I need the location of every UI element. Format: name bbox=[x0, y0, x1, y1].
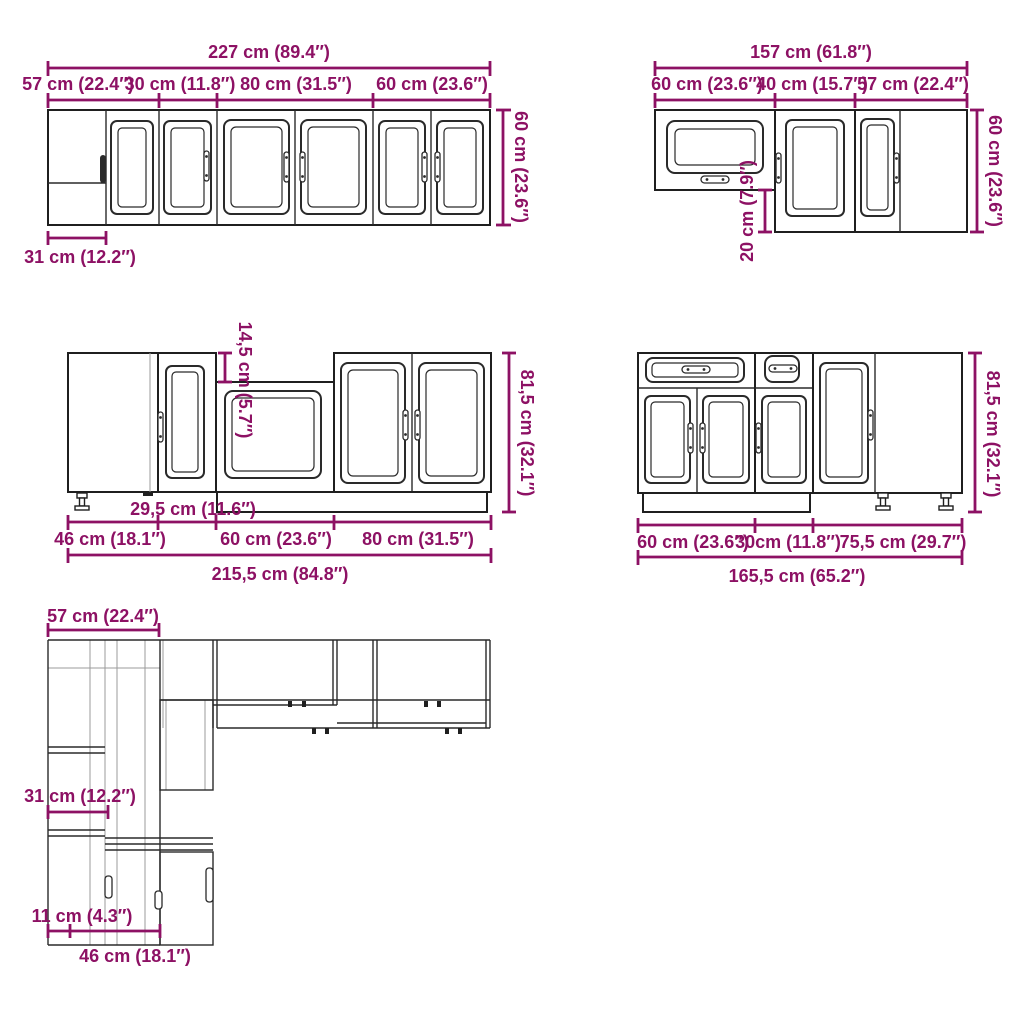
total-width-dimension: 165,5 cm (65.2″) bbox=[638, 550, 962, 586]
wall-depth-dimension: 31 cm (12.2″) bbox=[24, 786, 136, 819]
wall-cabinet bbox=[775, 110, 855, 232]
door-handle bbox=[435, 152, 440, 182]
dimension-label: 20 cm (7.9″) bbox=[737, 160, 757, 262]
door-handle bbox=[284, 152, 289, 182]
corner-wall-cabinet bbox=[855, 110, 967, 232]
door-handle bbox=[105, 876, 112, 898]
dimension-label: 80 cm (31.5″) bbox=[240, 74, 352, 94]
sink-base-cabinet bbox=[216, 382, 334, 492]
dimension-diagram: 227 cm (89.4″) 57 cm (22.4″) 30 cm (11.8… bbox=[0, 0, 1024, 1024]
door-handle bbox=[300, 152, 305, 182]
dimension-label: 31 cm (12.2″) bbox=[24, 247, 136, 267]
dimension-label: 60 cm (23.6″) bbox=[985, 115, 1005, 227]
plinth-panel bbox=[643, 493, 810, 512]
door-handle bbox=[688, 423, 693, 453]
corner-base-cabinet bbox=[68, 353, 158, 510]
dimension-label: 11 cm (4.3″) bbox=[32, 906, 133, 926]
dimension-label: 57 cm (22.4″) bbox=[22, 74, 134, 94]
dimension-label: 157 cm (61.8″) bbox=[750, 42, 872, 62]
wall-run-b-front-view: 157 cm (61.8″) 60 cm (23.6″) 40 cm (15.7… bbox=[651, 42, 1005, 262]
dimension-label: 46 cm (18.1″) bbox=[79, 946, 191, 966]
height-dimension: 60 cm (23.6″) bbox=[970, 110, 1005, 232]
door-handle bbox=[894, 153, 899, 183]
segment-width-dimension: 60 cm (23.6″) 40 cm (15.7″) 57 cm (22.4″… bbox=[651, 74, 969, 108]
dimension-label: 30cm (11.8″) bbox=[735, 532, 841, 552]
segment-width-dimension: 60 cm (23.6″) 30cm (11.8″) 75,5 cm (29.7… bbox=[637, 518, 966, 552]
dimension-label: 60 cm (23.6″) bbox=[376, 74, 488, 94]
door-handle bbox=[756, 423, 761, 453]
dimension-label: 57 cm (22.4″) bbox=[47, 606, 159, 626]
height-dimension: 81,5 cm (32.1″) bbox=[968, 353, 1003, 512]
dimension-label: 81,5 cm (32.1″) bbox=[517, 370, 537, 497]
door-handle bbox=[700, 423, 705, 453]
dimension-label: 60 cm (23.6″) bbox=[651, 74, 763, 94]
total-width-dimension: 157 cm (61.8″) bbox=[655, 42, 967, 76]
glass-wall-cabinet bbox=[655, 110, 775, 190]
base-run-a-front-view: 14,5 cm (5.7″) 81,5 cm (32.1″) 29,5 cm (… bbox=[54, 322, 537, 584]
double-door-base-cabinet bbox=[334, 353, 491, 492]
dimension-label: 14,5 cm (5.7″) bbox=[235, 322, 255, 439]
total-width-dimension: 227 cm (89.4″) bbox=[48, 42, 490, 76]
adjustable-leg bbox=[75, 493, 89, 510]
dimension-label: 81,5 cm (32.1″) bbox=[983, 371, 1003, 498]
dimension-label: 57 cm (22.4″) bbox=[857, 74, 969, 94]
drawer-handle bbox=[769, 365, 797, 372]
narrow-base-cabinet bbox=[158, 353, 216, 492]
door-handle bbox=[158, 412, 163, 442]
total-width-dimension: 215,5 cm (84.8″) bbox=[68, 548, 491, 584]
dimension-label: 31 cm (12.2″) bbox=[24, 786, 136, 806]
dimension-label: 29,5 cm (11.6″) bbox=[130, 499, 256, 519]
plan-view: 57 cm (22.4″) bbox=[24, 606, 490, 966]
adjustable-leg bbox=[876, 493, 890, 510]
door-handle bbox=[415, 410, 420, 440]
tall-unit-plan bbox=[160, 852, 213, 945]
dimension-label: 165,5 cm (65.2″) bbox=[729, 566, 866, 586]
plinth-panel bbox=[217, 492, 487, 512]
wall-run-a-front-view: 227 cm (89.4″) 57 cm (22.4″) 30 cm (11.8… bbox=[22, 42, 531, 267]
drawer-base-cabinet bbox=[638, 353, 755, 493]
door-handle bbox=[204, 151, 209, 181]
dimension-label: 60 cm (23.6″) bbox=[511, 111, 531, 223]
base-depth-dimension: 46 cm (18.1″) bbox=[79, 946, 191, 966]
height-dimension: 60 cm (23.6″) bbox=[496, 110, 531, 225]
door-handle bbox=[206, 868, 213, 902]
door-handle bbox=[701, 176, 729, 183]
worktop-recess-dimension: 14,5 cm (5.7″) bbox=[218, 322, 255, 439]
dimension-label: 215,5 cm (84.8″) bbox=[212, 564, 349, 584]
door-handle bbox=[776, 153, 781, 183]
corner-door-handle bbox=[100, 155, 106, 183]
corner-blind-dimension: 31 cm (12.2″) bbox=[24, 231, 136, 267]
door-handle bbox=[155, 891, 162, 909]
dimension-label: 46 cm (18.1″) bbox=[54, 529, 166, 549]
segment-width-dimension: 57 cm (22.4″) 30 cm (11.8″) 80 cm (31.5″… bbox=[22, 74, 490, 108]
corner-width-dimension: 57 cm (22.4″) bbox=[47, 606, 159, 637]
door-handle bbox=[422, 152, 427, 182]
dimension-label: 60 cm (23.6″) bbox=[637, 532, 749, 552]
height-dimension: 81,5 cm (32.1″) bbox=[502, 353, 537, 512]
corner-base-cabinet bbox=[813, 353, 962, 510]
diagram-canvas: 227 cm (89.4″) 57 cm (22.4″) 30 cm (11.8… bbox=[0, 0, 1024, 1024]
base-run-b-front-view: 81,5 cm (32.1″) 60 cm (23.6″) 30cm (11.8… bbox=[637, 353, 1003, 586]
dimension-label: 227 cm (89.4″) bbox=[208, 42, 330, 62]
narrow-drawer-cabinet bbox=[755, 353, 813, 493]
leg-mark bbox=[143, 492, 153, 496]
dimension-label: 30 cm (11.8″) bbox=[125, 74, 236, 94]
door-handle bbox=[868, 410, 873, 440]
drawer-handle bbox=[682, 366, 710, 373]
dimension-label: 40 cm (15.7″) bbox=[756, 74, 868, 94]
door-handle bbox=[403, 410, 408, 440]
dimension-label: 60 cm (23.6″) bbox=[220, 529, 332, 549]
dimension-label: 75,5 cm (29.7″) bbox=[840, 532, 967, 552]
gap-depth-dimension: 11 cm (4.3″) bbox=[32, 906, 160, 938]
dimension-label: 80 cm (31.5″) bbox=[362, 529, 474, 549]
adjustable-leg bbox=[939, 493, 953, 510]
